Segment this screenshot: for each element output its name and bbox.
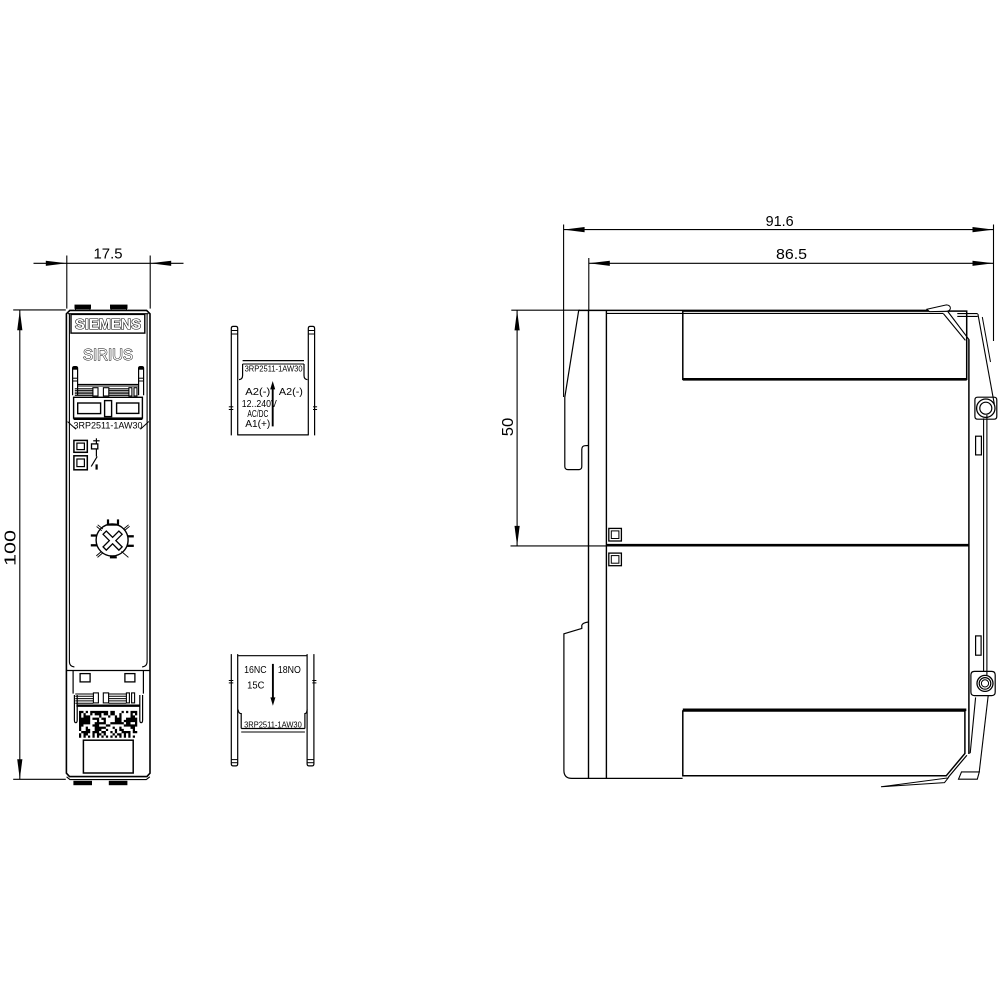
svg-text:15C: 15C [247,680,265,692]
svg-text:3RP2511-1AW30: 3RP2511-1AW30 [244,721,302,730]
svg-text:16NC: 16NC [244,664,267,676]
svg-text:SIEMENS: SIEMENS [75,317,141,333]
svg-text:91.6: 91.6 [766,213,794,230]
svg-text:18NO: 18NO [278,664,301,676]
svg-text:100: 100 [2,529,19,566]
svg-text:A1(+): A1(+) [245,418,270,430]
svg-text:50: 50 [500,417,517,436]
svg-text:86.5: 86.5 [776,246,807,263]
svg-text:SIRIUS: SIRIUS [83,347,133,364]
svg-text:A2(-): A2(-) [245,386,270,398]
svg-text:3RP2511-1AW30: 3RP2511-1AW30 [245,364,304,373]
svg-text:17.5: 17.5 [94,246,123,262]
svg-text:3RP2511-1AW30: 3RP2511-1AW30 [74,420,143,430]
svg-text:A2(-): A2(-) [279,386,303,398]
